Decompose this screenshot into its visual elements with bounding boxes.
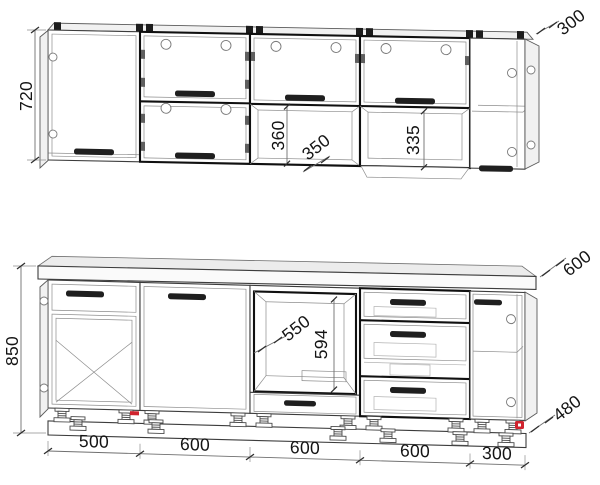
flap-handle [175,152,215,159]
drawer-handle [284,400,316,406]
dim-wall-depth: 300 [536,5,589,39]
base-cabinet-2 [140,282,250,413]
open-flap-door [361,166,469,179]
wall-cabinet-2 [140,32,250,164]
dim-label-width-5: 300 [482,443,512,464]
wall-right-side-panel [525,39,539,169]
dim-label-width-4: 600 [400,440,430,461]
base-cabinet-1 [48,280,140,410]
door-handle [479,165,513,172]
dim-label-480: 480 [549,391,585,425]
door-handle [168,293,206,300]
flap-handle [285,95,325,102]
kitchen-elevation-drawing: 360 335 [0,0,600,485]
base-cabinet-5 [470,291,525,420]
door-handle [74,149,114,156]
dim-label-720: 720 [16,81,36,111]
dim-label-850: 850 [2,336,22,366]
dim-label-594: 594 [311,329,331,360]
wall-left-side-panel [40,31,48,169]
dim-label-335: 335 [403,125,423,155]
flap-handle [175,90,215,97]
base-right-side-panel [525,292,537,421]
base-cabinet-row: 594 [48,280,526,448]
drawer-handle [390,387,426,394]
dim-label-360: 360 [268,120,288,150]
base-cabinet-3: 594 [250,285,360,416]
dim-worktop-depth: 600 [540,246,595,280]
red-marker-left [130,411,139,415]
door-handle [474,299,502,305]
dim-label-width-1: 500 [79,431,109,452]
red-marker-right [515,421,524,429]
wall-cabinet-4: 335 [360,36,470,179]
wall-cabinet-1 [48,30,140,162]
drawer-handle [390,331,426,338]
dim-label-600-depth: 600 [559,246,595,280]
flap-handle [395,98,435,105]
drawing-canvas: 360 335 [0,0,600,485]
drawer-handle [66,290,104,297]
wall-cabinet-5 [470,38,529,172]
dim-base-height: 850 [2,263,46,436]
drawer-handle [390,299,426,306]
dim-label-300-depth: 300 [553,5,589,39]
wall-cabinet-row: 360 335 [48,22,533,180]
dim-label-width-3: 600 [290,437,320,458]
dim-label-width-2: 600 [180,434,210,455]
base-cabinet-4 [360,288,470,419]
